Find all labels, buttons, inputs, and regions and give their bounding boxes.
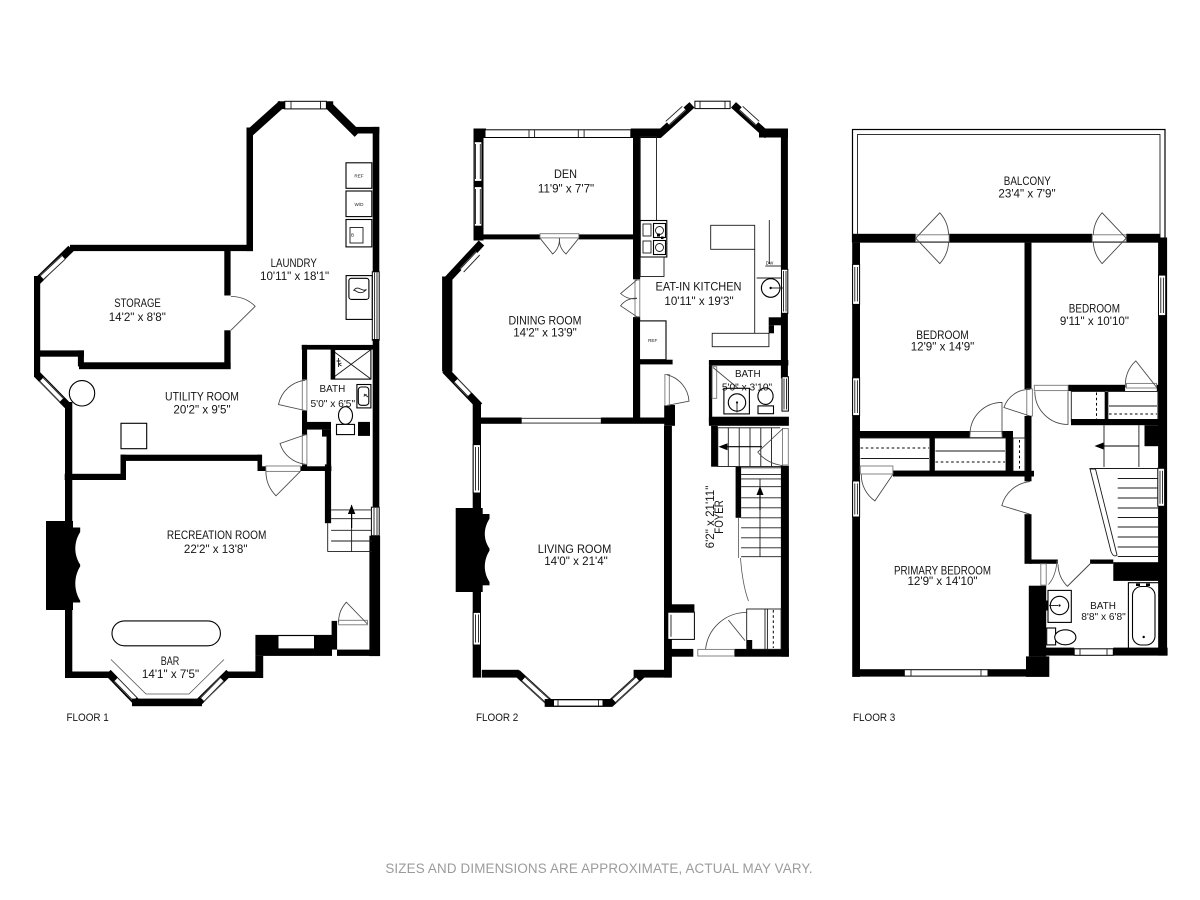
svg-text:B: B xyxy=(351,233,354,238)
svg-text:8'8" x 6'8": 8'8" x 6'8" xyxy=(1081,612,1126,623)
svg-text:EAT-IN KITCHEN: EAT-IN KITCHEN xyxy=(656,282,742,294)
svg-text:22'2" x 13'8": 22'2" x 13'8" xyxy=(184,543,248,556)
svg-text:REF: REF xyxy=(354,174,363,179)
svg-text:10'11" x 18'1": 10'11" x 18'1" xyxy=(260,270,329,283)
svg-text:DW: DW xyxy=(766,261,774,266)
svg-text:14'2" x 8'8": 14'2" x 8'8" xyxy=(109,311,166,324)
svg-text:14'1" x 7'5": 14'1" x 7'5" xyxy=(142,668,199,681)
svg-text:10'11" x 19'3": 10'11" x 19'3" xyxy=(664,295,733,308)
svg-text:5'0" x 3'10": 5'0" x 3'10" xyxy=(722,383,773,394)
svg-text:FLOOR 2: FLOOR 2 xyxy=(476,712,518,724)
svg-text:12'9" x 14'9": 12'9" x 14'9" xyxy=(911,341,975,354)
svg-text:14'2" x 13'9": 14'2" x 13'9" xyxy=(513,327,577,340)
svg-text:BATH: BATH xyxy=(735,368,761,380)
svg-text:6'2" x 21'11": 6'2" x 21'11" xyxy=(704,486,717,549)
svg-text:W/D: W/D xyxy=(355,202,365,207)
svg-text:REF: REF xyxy=(648,338,657,343)
svg-text:20'2" x 9'5": 20'2" x 9'5" xyxy=(173,404,230,417)
svg-text:SIZES AND DIMENSIONS ARE APPRO: SIZES AND DIMENSIONS ARE APPROXIMATE, AC… xyxy=(385,861,812,876)
svg-text:11'9" x 7'7": 11'9" x 7'7" xyxy=(538,183,594,196)
svg-text:BALCONY: BALCONY xyxy=(1004,176,1051,188)
svg-text:UTILITY ROOM: UTILITY ROOM xyxy=(165,392,239,404)
svg-text:LAUNDRY: LAUNDRY xyxy=(271,258,317,270)
svg-text:FLOOR 3: FLOOR 3 xyxy=(853,712,895,724)
svg-text:12'9" x 14'10": 12'9" x 14'10" xyxy=(907,575,977,588)
svg-text:5'0" x 6'5": 5'0" x 6'5" xyxy=(311,399,356,410)
svg-text:FLOOR 1: FLOOR 1 xyxy=(67,712,109,724)
svg-text:23'4" x 7'9": 23'4" x 7'9" xyxy=(998,188,1055,201)
svg-text:BEDROOM: BEDROOM xyxy=(1069,304,1120,316)
svg-text:DEN: DEN xyxy=(554,169,577,181)
svg-text:BAR: BAR xyxy=(161,656,180,668)
svg-text:9'11" x 10'10": 9'11" x 10'10" xyxy=(1060,315,1129,328)
svg-text:BATH: BATH xyxy=(1090,600,1116,612)
svg-text:STORAGE: STORAGE xyxy=(114,298,161,310)
svg-text:BATH: BATH xyxy=(320,383,346,395)
svg-text:14'0" x 21'4": 14'0" x 21'4" xyxy=(544,555,608,568)
svg-text:RECREATION ROOM: RECREATION ROOM xyxy=(167,530,267,542)
